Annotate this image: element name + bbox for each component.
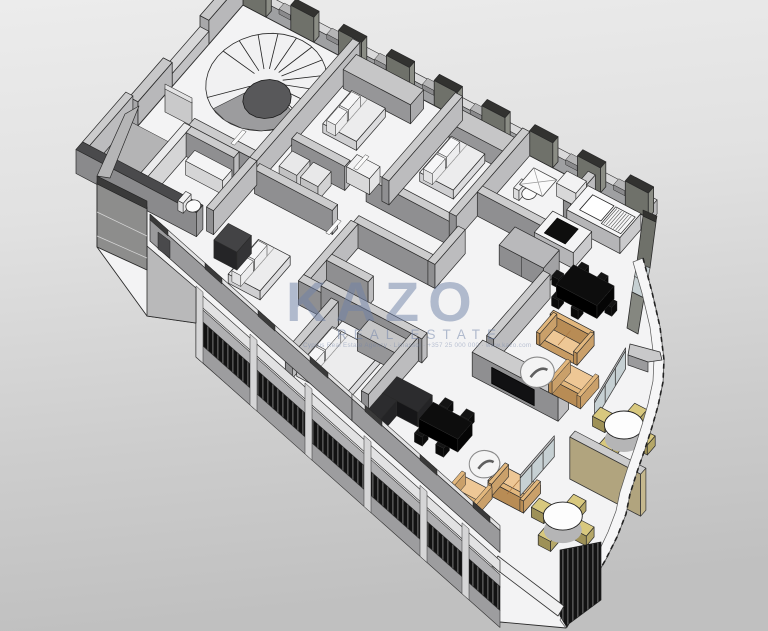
svg-text:KAZO: KAZO [286, 270, 481, 333]
svg-text:REAL ESTATE: REAL ESTATE [337, 327, 503, 342]
svg-text:Cyprus Real Estate Agency · Li: Cyprus Real Estate Agency · Limassol · +… [303, 342, 531, 349]
